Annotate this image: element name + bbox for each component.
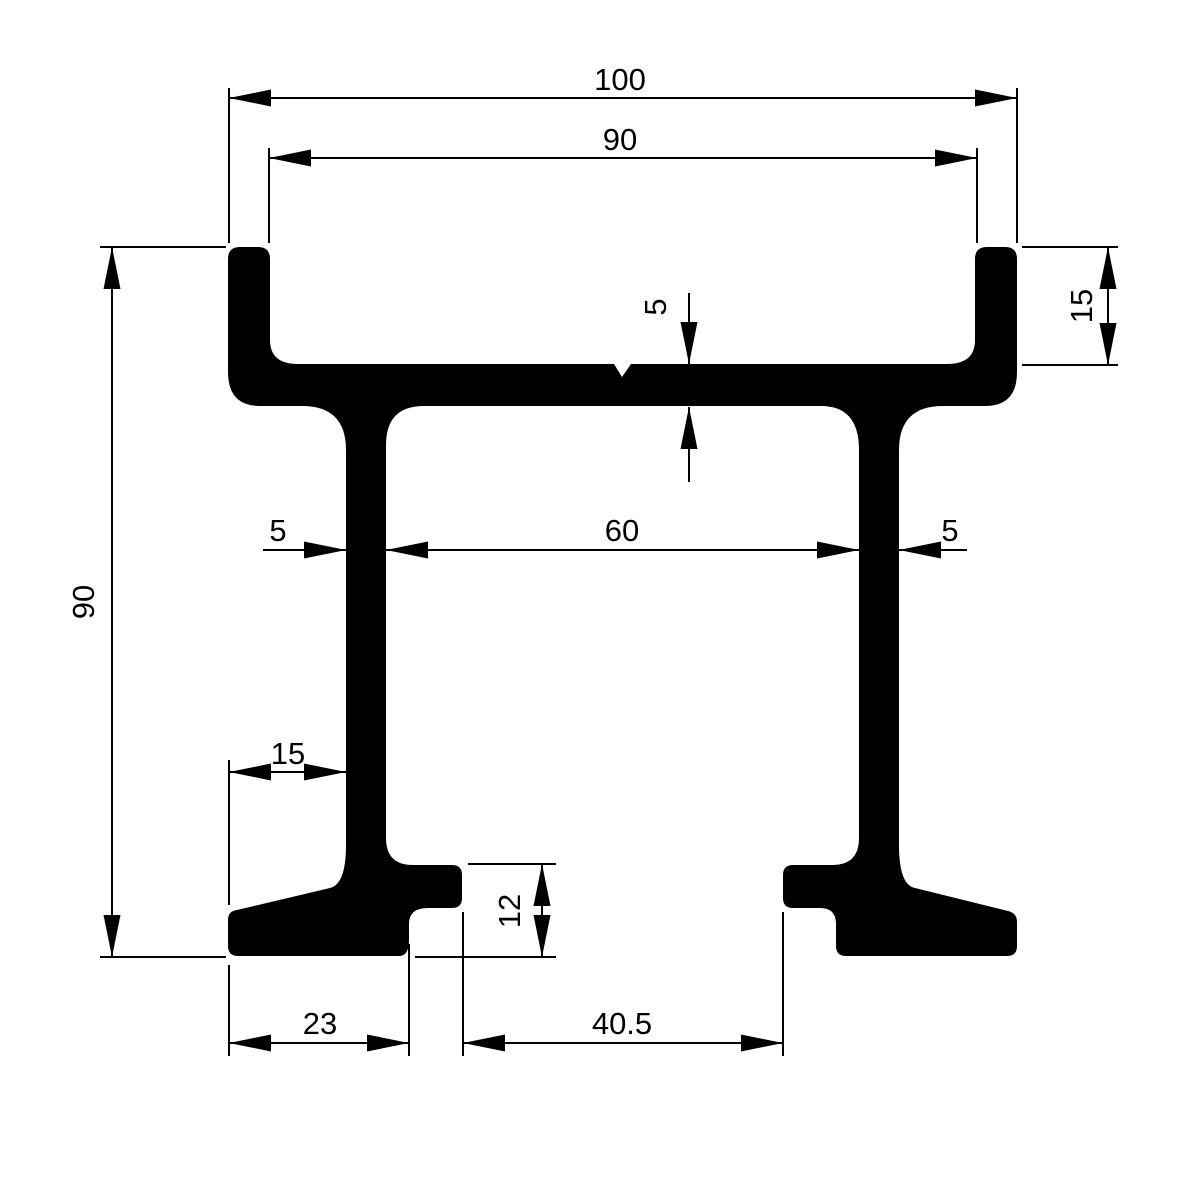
dim-foot-width: 23 bbox=[229, 944, 409, 1056]
dim-flange-inner-width-label: 90 bbox=[603, 122, 637, 157]
dim-web-inner-spacing-label: 60 bbox=[605, 513, 639, 548]
dim-foot-width-label: 23 bbox=[303, 1006, 337, 1041]
profile-outline bbox=[228, 247, 1017, 956]
dim-web-left-thickness: 5 bbox=[263, 513, 346, 550]
dim-plate-thickness-label: 5 bbox=[638, 298, 673, 315]
dim-web-inner-spacing: 60 bbox=[386, 513, 859, 550]
dim-lip-height: 15 bbox=[1022, 247, 1118, 365]
dim-web-right-thickness: 5 bbox=[899, 513, 967, 550]
dim-foot-height-label: 12 bbox=[492, 894, 527, 928]
dim-feet-inner-gap-label: 40.5 bbox=[592, 1006, 652, 1041]
dim-web-right-thickness-label: 5 bbox=[941, 513, 958, 548]
dim-feet-inner-gap: 40.5 bbox=[463, 912, 783, 1056]
technical-drawing: 100 90 15 5 90 5 60 5 bbox=[0, 0, 1200, 1200]
dim-foot-left-offset-label: 15 bbox=[271, 736, 305, 771]
dim-web-left-thickness-label: 5 bbox=[269, 513, 286, 548]
dim-overall-height-label: 90 bbox=[66, 585, 101, 619]
dim-flange-inner-width: 90 bbox=[269, 122, 977, 243]
dim-overall-height: 90 bbox=[66, 247, 226, 957]
dim-lip-height-label: 15 bbox=[1064, 289, 1099, 323]
dim-foot-left-offset: 15 bbox=[229, 736, 346, 905]
dim-overall-width-label: 100 bbox=[594, 62, 646, 97]
